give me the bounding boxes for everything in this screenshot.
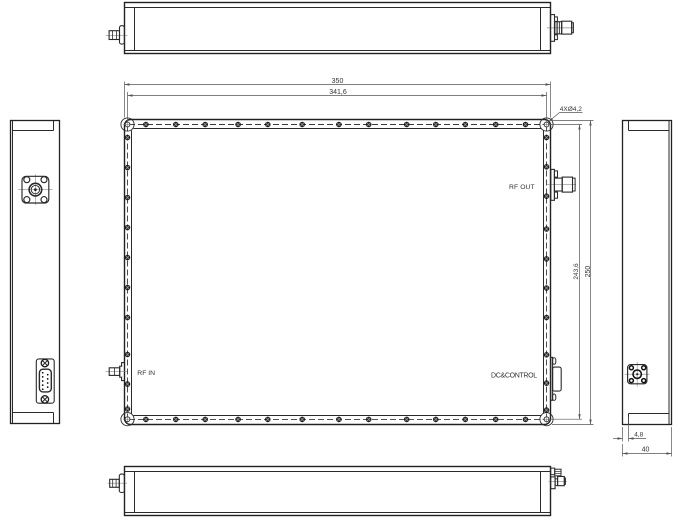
svg-text:DC&CONTROL: DC&CONTROL	[491, 373, 538, 380]
svg-text:350: 350	[332, 78, 344, 85]
svg-text:RF OUT: RF OUT	[509, 184, 535, 191]
svg-text:250: 250	[585, 266, 592, 278]
svg-text:4XØ4,2: 4XØ4,2	[560, 106, 582, 113]
svg-text:40: 40	[642, 447, 650, 454]
svg-text:4,8: 4,8	[634, 432, 643, 439]
svg-text:243,6: 243,6	[573, 263, 580, 280]
svg-text:RF IN: RF IN	[137, 370, 155, 377]
svg-text:341,6: 341,6	[329, 89, 347, 96]
